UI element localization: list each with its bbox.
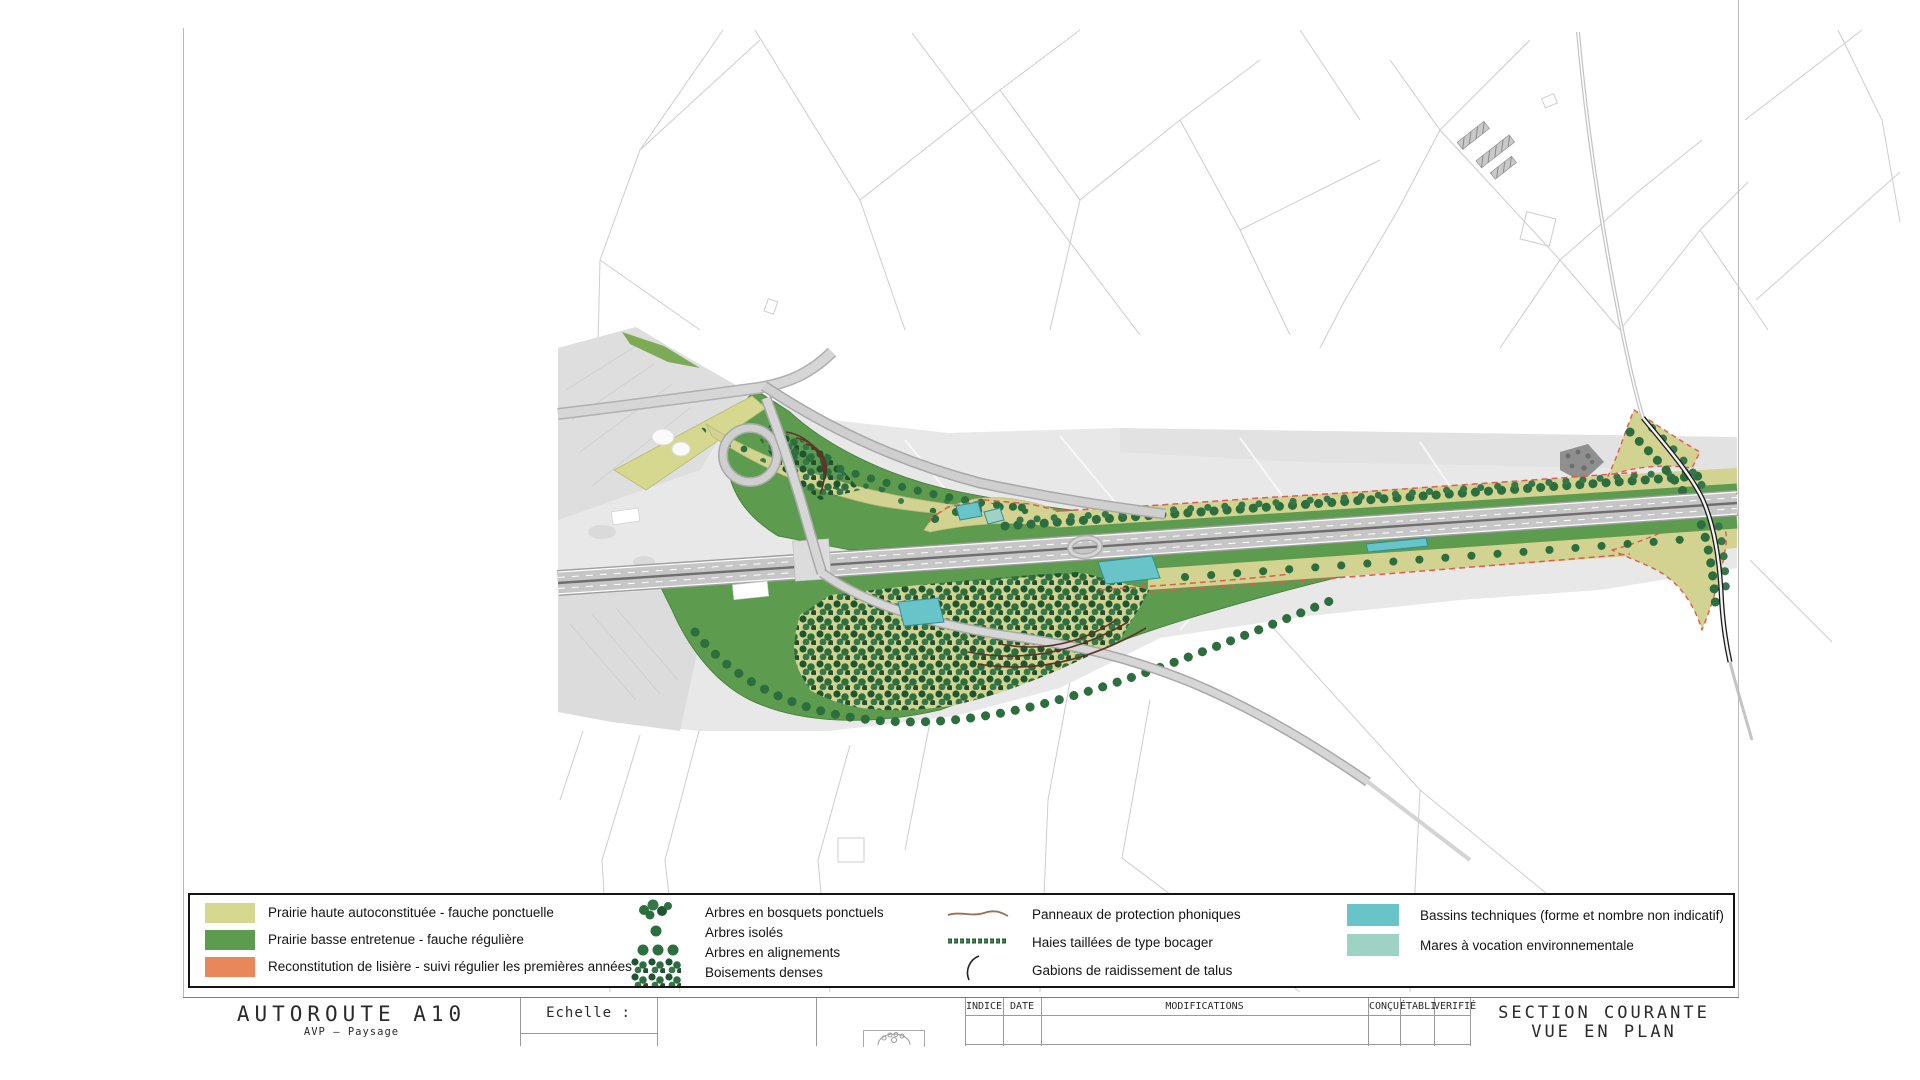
crossing-road [1578, 32, 1752, 740]
title-block: AUTOROUTE A10 AVP – Paysage Echelle : IN… [183, 997, 1739, 1045]
legend-label-bassins: Bassins techniques (forme et nombre non … [1420, 908, 1724, 924]
legend-label-mares: Mares à vocation environnementale [1420, 938, 1634, 954]
hedge-line-icon [946, 936, 1010, 946]
scale-label: Echelle : [520, 1005, 657, 1021]
project-subtitle: AVP – Paysage [183, 1026, 520, 1038]
revision-header-verifie: VERIFIÉ [1434, 1001, 1470, 1012]
legend-swatch-prairie-haute [205, 903, 255, 923]
drawing-title-line2: VUE EN PLAN [1470, 1023, 1738, 1042]
tree-row-icon [635, 943, 681, 957]
existing-buildings [1457, 121, 1516, 179]
single-tree-icon [649, 924, 663, 938]
legend-label-gabions: Gabions de raidissement de talus [1032, 963, 1232, 979]
legend-label-lisiere: Reconstitution de lisière - suivi réguli… [268, 959, 632, 975]
legend-label-bosquets: Arbres en bosquets ponctuels [705, 905, 884, 921]
basin [898, 598, 944, 626]
legend-swatch-prairie-basse [205, 930, 255, 950]
revision-header-concu: CONÇU [1368, 1001, 1400, 1012]
project-title: AUTOROUTE A10 [183, 1002, 520, 1026]
legend-label-panneaux: Panneaux de protection phoniques [1032, 907, 1241, 923]
drawing-sheet: Prairie haute autoconstituée - fauche po… [0, 0, 1920, 1080]
scale-cell-line [520, 1033, 657, 1034]
drawing-title-line1: SECTION COURANTE [1470, 1004, 1738, 1023]
legend-swatch-bassins [1347, 904, 1399, 926]
gabion-arc-icon [963, 953, 987, 983]
legend-swatch-lisiere [205, 957, 255, 977]
dense-woods-icon [631, 958, 681, 986]
tree-cluster-icon [635, 898, 679, 922]
legend-label-prairie-basse: Prairie basse entretenue - fauche réguli… [268, 932, 524, 948]
drawing-title: SECTION COURANTE VUE EN PLAN [1470, 1004, 1738, 1042]
page-border-left [183, 28, 184, 1045]
page-border-right [1738, 0, 1739, 1045]
company-logo [863, 1030, 925, 1047]
titleblock-divider [657, 998, 658, 1046]
legend-label-haies: Haies taillées de type bocager [1032, 935, 1213, 951]
legend-swatch-mares [1347, 934, 1399, 956]
crest-logo-icon [872, 1031, 916, 1045]
revision-header-indice: INDICE [965, 1001, 1003, 1012]
revision-header-date: DATE [1003, 1001, 1041, 1012]
revision-header-modifications: MODIFICATIONS [1041, 1001, 1368, 1012]
revision-header-etabli: ÉTABLI [1400, 1001, 1434, 1012]
titleblock-divider [816, 998, 817, 1046]
legend-label-boisements: Boisements denses [705, 965, 823, 981]
noise-panel-line-icon [946, 908, 1010, 920]
legend-box: Prairie haute autoconstituée - fauche po… [188, 893, 1735, 988]
legend-label-alignements: Arbres en alignements [705, 945, 840, 961]
legend-label-isoles: Arbres isolés [705, 925, 783, 941]
legend-label-prairie-haute: Prairie haute autoconstituée - fauche po… [268, 905, 554, 921]
